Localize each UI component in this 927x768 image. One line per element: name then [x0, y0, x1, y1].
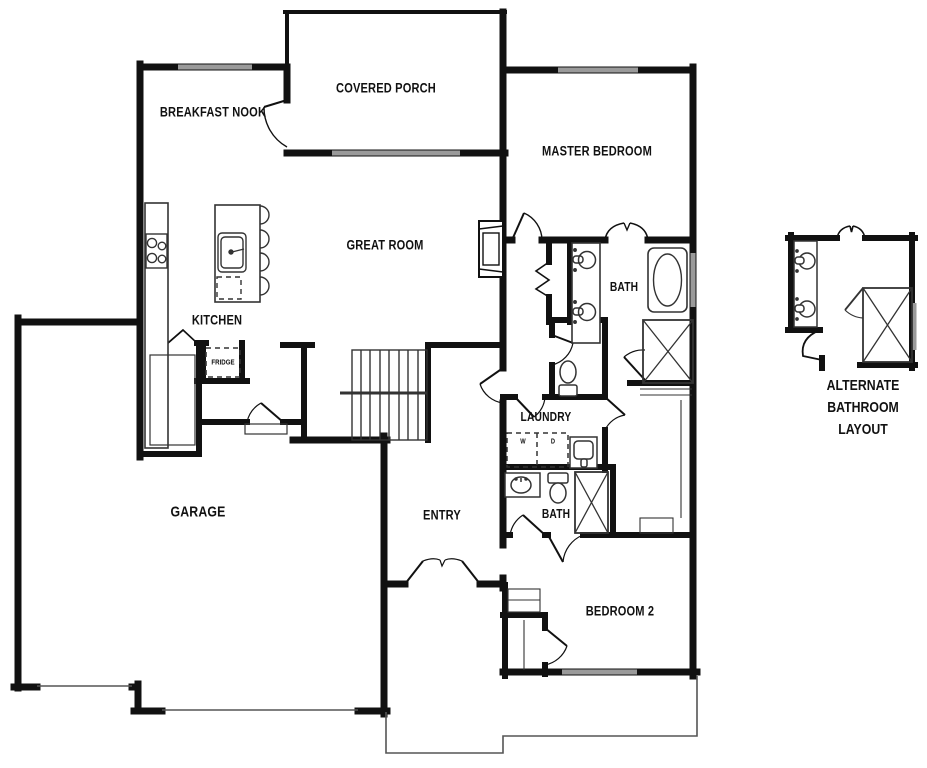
room-label-laundry: LAUNDRY [521, 410, 572, 424]
master-toilet [559, 361, 577, 396]
room-label-bath2: BATH [542, 507, 570, 521]
room-label-great-room: GREAT ROOM [346, 238, 423, 253]
alt-bath-shower [845, 288, 912, 362]
floor-plan: BREAKFAST NOOK COVERED PORCH MASTER BEDR… [0, 0, 927, 768]
bath2-vanity [505, 473, 540, 497]
appliance-label-dryer: D [551, 439, 555, 446]
fireplace [479, 221, 503, 277]
appliance-label-washer: W [520, 439, 525, 446]
alt-bath-vanity [794, 241, 817, 327]
bath2-shower [575, 472, 608, 533]
room-label-garage: GARAGE [171, 504, 226, 521]
floor-plan-drawing [0, 0, 927, 768]
room-label-master-bath: BATH [610, 280, 638, 294]
room-label-breakfast-nook: BREAKFAST NOOK [160, 105, 266, 120]
laundry-sink [570, 437, 597, 468]
bedroom2-closet-shelves [508, 589, 540, 670]
inset-label-layout: LAYOUT [838, 419, 887, 441]
bar-stools [260, 206, 269, 295]
garage-step [245, 424, 287, 434]
room-label-covered-porch: COVERED PORCH [336, 81, 436, 96]
inset-label-alternate: ALTERNATE [827, 375, 900, 397]
master-shower [643, 320, 693, 383]
staircase [340, 350, 427, 440]
room-label-master-bedroom: MASTER BEDROOM [542, 144, 652, 159]
room-label-entry: ENTRY [423, 508, 461, 523]
bath2-toilet [548, 473, 568, 503]
inset-label-bathroom: BATHROOM [827, 397, 899, 419]
appliance-label-fridge: FRIDGE [211, 358, 234, 367]
bathtub [648, 248, 687, 312]
master-closet-rods [640, 389, 692, 533]
washer-dryer [507, 433, 568, 467]
kitchen-island [215, 205, 260, 302]
room-label-bedroom2: BEDROOM 2 [586, 604, 655, 619]
porch-walls [285, 12, 505, 68]
room-label-kitchen: KITCHEN [192, 313, 242, 328]
